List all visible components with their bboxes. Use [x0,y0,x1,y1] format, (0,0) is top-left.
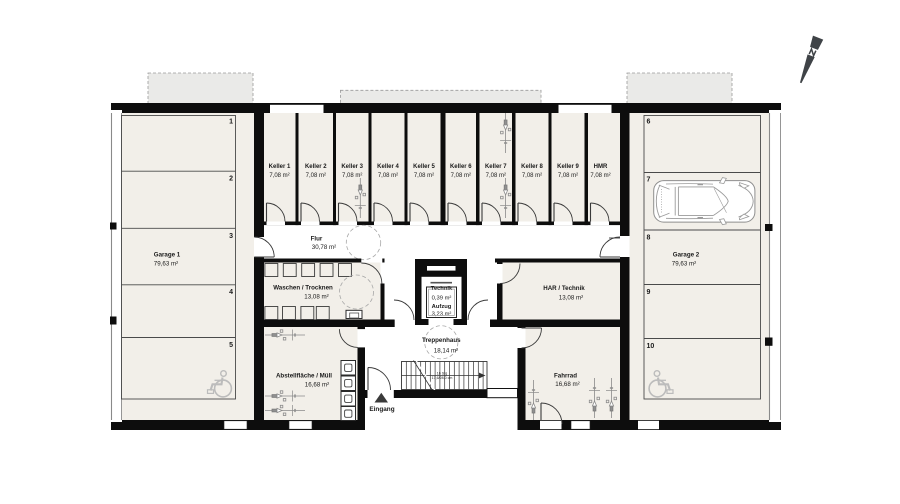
svg-text:8: 8 [647,235,651,242]
svg-text:Keller 6: Keller 6 [450,164,472,170]
svg-text:17,6/28,0 cm: 17,6/28,0 cm [432,376,453,380]
svg-text:Garage 2: Garage 2 [673,252,700,259]
svg-text:Eingang: Eingang [369,406,394,413]
svg-text:7,08 m²: 7,08 m² [451,173,471,179]
svg-text:7,08 m²: 7,08 m² [590,173,610,179]
svg-text:79,63 m²: 79,63 m² [154,261,178,268]
svg-text:Keller 4: Keller 4 [377,164,399,170]
svg-text:Keller 1: Keller 1 [269,164,291,170]
svg-text:16 Stg: 16 Stg [437,371,447,375]
svg-text:Flur: Flur [311,236,323,243]
svg-text:HMR: HMR [594,164,608,170]
svg-text:7,08 m²: 7,08 m² [486,173,506,179]
svg-text:7,08 m²: 7,08 m² [378,173,398,179]
svg-text:1: 1 [229,119,233,126]
svg-text:7,08 m²: 7,08 m² [306,173,326,179]
svg-text:5: 5 [229,342,233,349]
svg-text:18,14 m²: 18,14 m² [434,347,458,354]
svg-text:0,39 m²: 0,39 m² [432,296,452,302]
svg-text:13,08 m²: 13,08 m² [559,294,583,301]
svg-text:7: 7 [647,177,651,184]
svg-text:Keller 7: Keller 7 [485,164,507,170]
svg-text:79,63 m²: 79,63 m² [672,261,696,268]
svg-text:Fahrrad: Fahrrad [554,373,577,380]
svg-text:Aufzug: Aufzug [432,304,452,310]
svg-text:Keller 5: Keller 5 [413,164,435,170]
svg-text:13,08 m²: 13,08 m² [304,294,328,301]
svg-text:4: 4 [229,289,233,296]
svg-text:Keller 3: Keller 3 [341,164,363,170]
svg-text:7,08 m²: 7,08 m² [269,173,289,179]
svg-text:7,08 m²: 7,08 m² [342,173,362,179]
svg-text:Abstellfläche / Müll: Abstellfläche / Müll [276,372,332,379]
svg-text:7,08 m²: 7,08 m² [522,173,542,179]
svg-text:3: 3 [229,233,233,240]
svg-text:3,23 m²: 3,23 m² [432,311,452,317]
svg-text:30,78 m²: 30,78 m² [312,244,336,251]
svg-text:7,08 m²: 7,08 m² [414,173,434,179]
svg-text:Keller 2: Keller 2 [305,164,327,170]
svg-text:Treppenhaus: Treppenhaus [422,337,461,344]
svg-text:Waschen / Trocknen: Waschen / Trocknen [273,285,333,292]
svg-text:6: 6 [647,119,651,126]
svg-text:Garage 1: Garage 1 [154,252,181,259]
svg-text:2: 2 [229,176,233,183]
svg-text:9: 9 [647,289,651,296]
svg-text:7,08 m²: 7,08 m² [558,173,578,179]
svg-text:HAR / Technik: HAR / Technik [543,285,585,292]
svg-text:16,68 m²: 16,68 m² [555,381,579,388]
svg-text:Keller 8: Keller 8 [521,164,543,170]
svg-text:16,68 m²: 16,68 m² [305,382,329,389]
svg-text:10: 10 [647,343,655,350]
svg-text:Keller 9: Keller 9 [557,164,579,170]
